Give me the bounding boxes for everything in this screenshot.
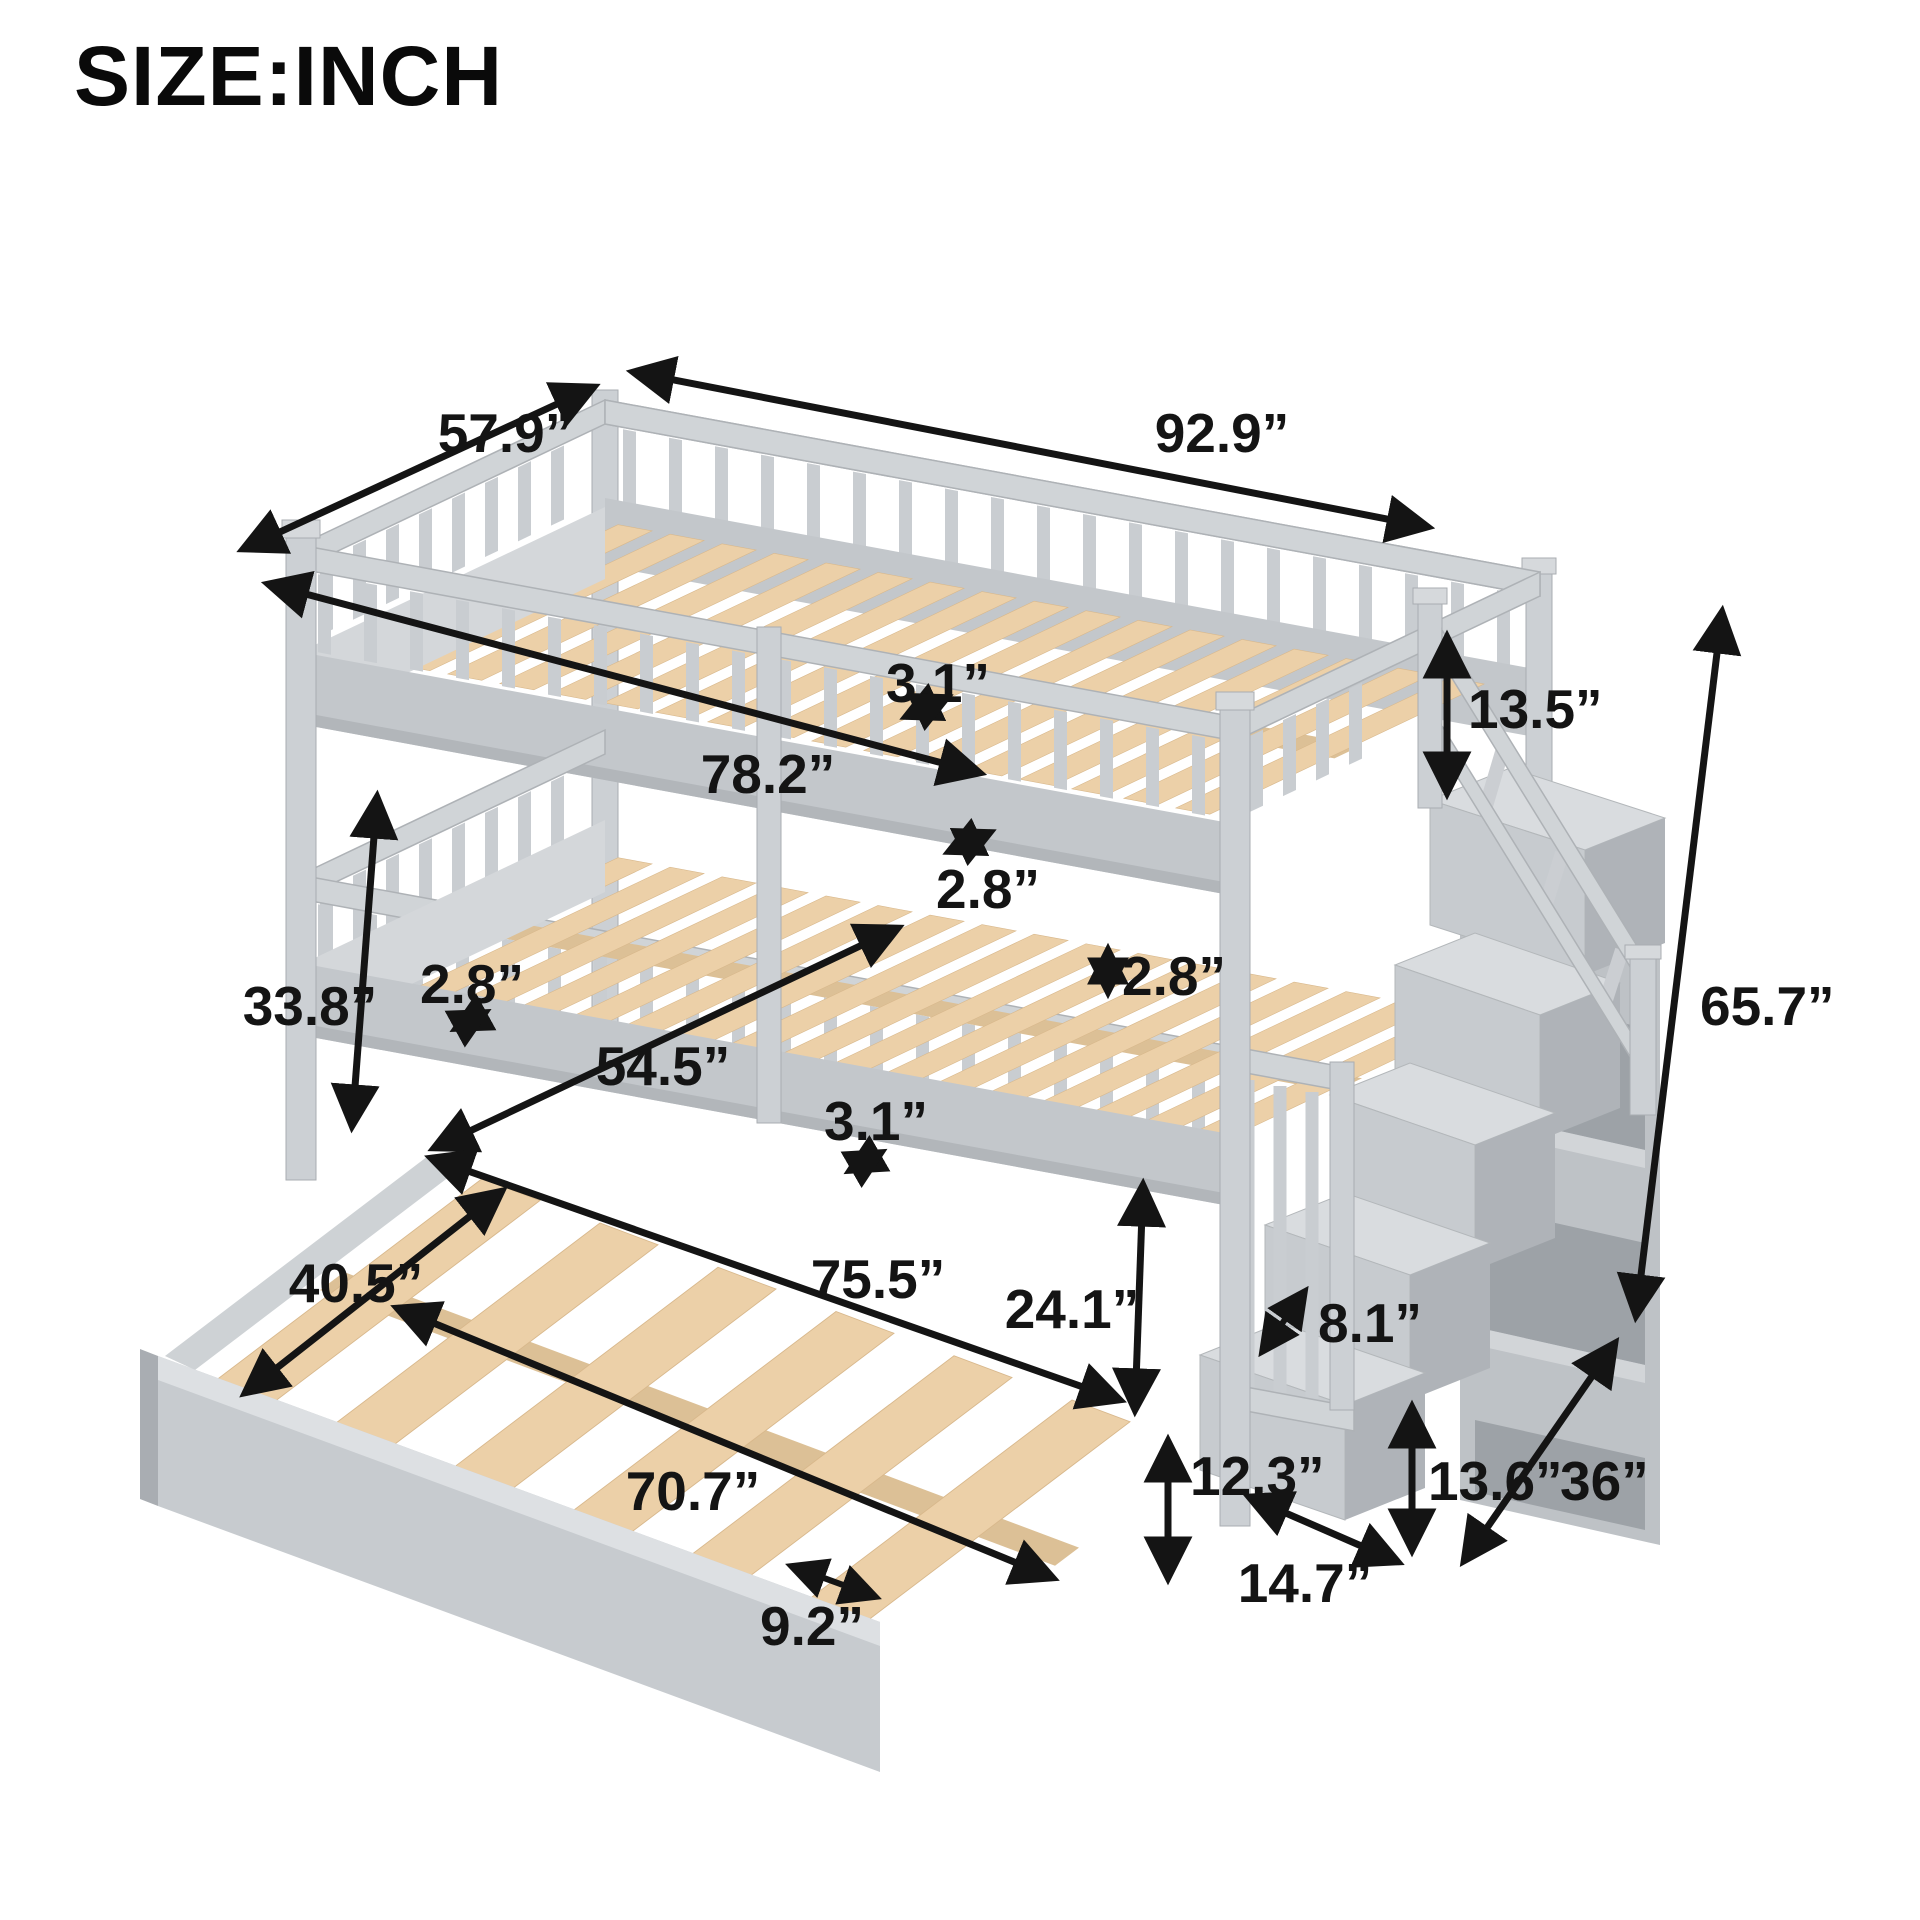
bunk-bed-dimension-diagram: 57.9” 92.9” 3.1” 78.2” 13.5” 2.8” 2.8” 3… xyxy=(0,0,1920,1920)
front-mid-post xyxy=(757,627,781,1123)
bunk-bed-illustration xyxy=(140,390,1665,1772)
dim-label-stair-tread-depth: 8.1” xyxy=(1318,1292,1422,1354)
diagram-canvas: SIZE:INCH xyxy=(0,0,1920,1920)
dim-label-overall-length: 92.9” xyxy=(1155,402,1290,464)
dim-label-top-slat-gap: 2.8” xyxy=(936,858,1040,920)
dim-arrow-bottom-slat-width xyxy=(849,1152,882,1171)
dim-label-trundle-slat-gap: 9.2” xyxy=(760,1595,864,1657)
dim-label-lower-rail-width: 2.8” xyxy=(420,953,524,1015)
front-right-leg xyxy=(1220,704,1250,1526)
dim-label-bottom-step-height: 13.6” xyxy=(1428,1450,1563,1512)
dim-label-top-slat-width: 3.1” xyxy=(886,652,990,714)
dim-label-bottom-bunk-inner-width: 54.5” xyxy=(596,1035,731,1097)
dim-label-staircase-depth: 36” xyxy=(1560,1450,1649,1512)
dim-label-bottom-bunk-clearance: 24.1” xyxy=(1005,1278,1140,1340)
dim-label-top-guardrail-height: 13.5” xyxy=(1468,678,1603,740)
dim-label-trundle-length: 70.7” xyxy=(626,1460,761,1522)
dim-label-stair-step-width: 14.7” xyxy=(1238,1552,1373,1614)
front-left-leg xyxy=(286,532,316,1180)
dim-label-trundle-width: 40.5” xyxy=(289,1252,424,1314)
dim-label-bottom-bunk-inner-length: 75.5” xyxy=(811,1248,946,1310)
dim-label-overall-depth: 57.9” xyxy=(438,402,573,464)
dim-label-under-bed-clearance: 12.3” xyxy=(1190,1445,1325,1507)
dim-label-rail-thickness: 2.8” xyxy=(1122,945,1226,1007)
dim-label-overall-height: 65.7” xyxy=(1700,975,1835,1037)
dim-label-bottom-slat-width: 3.1” xyxy=(824,1090,928,1152)
dim-label-top-bunk-inner-length: 78.2” xyxy=(701,743,836,805)
dim-label-bunk-spacing-height: 33.8” xyxy=(243,975,378,1037)
